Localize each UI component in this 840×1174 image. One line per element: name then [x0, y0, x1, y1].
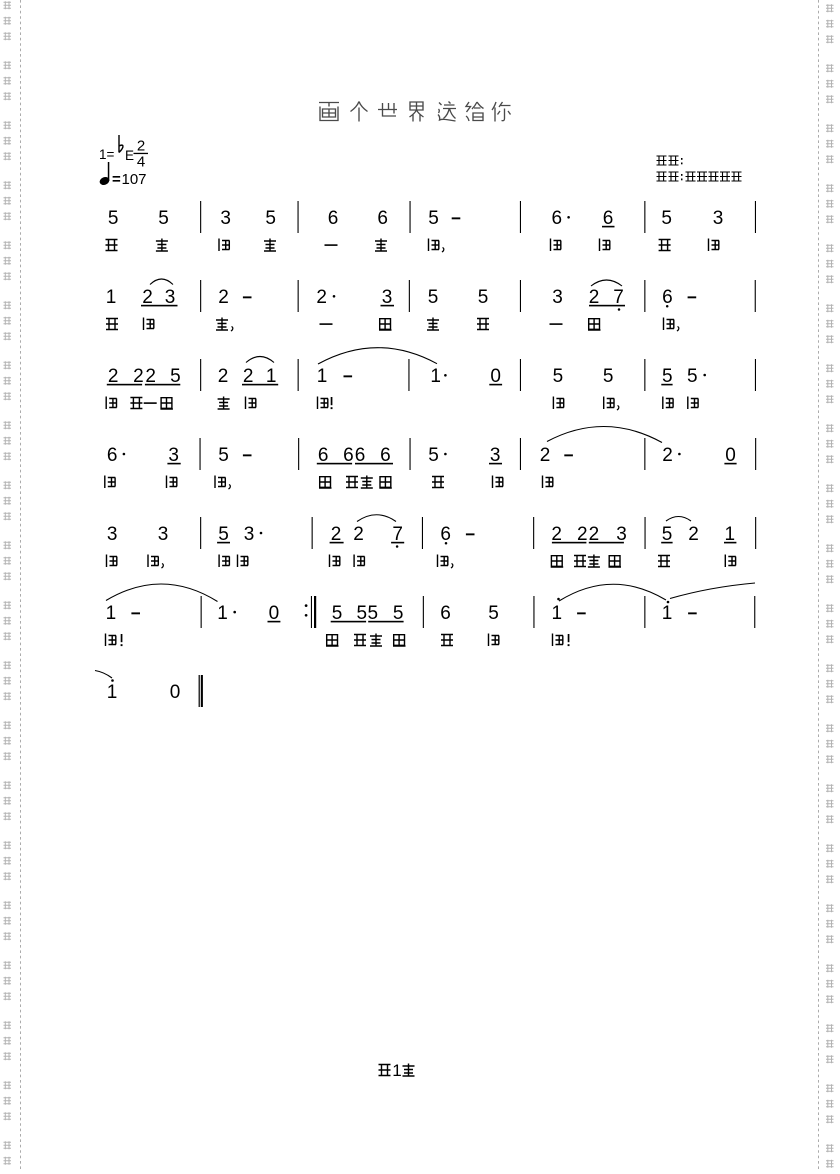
svg-text:1=: 1=	[99, 147, 115, 162]
svg-text:5: 5	[661, 208, 672, 229]
svg-text:E: E	[125, 148, 134, 163]
svg-text:107: 107	[122, 171, 147, 188]
svg-text:2: 2	[137, 138, 145, 155]
svg-text:5: 5	[553, 366, 564, 387]
svg-text:6: 6	[662, 287, 673, 308]
svg-text:3: 3	[713, 208, 724, 229]
svg-text:2: 2	[218, 287, 229, 308]
svg-text:1: 1	[106, 287, 117, 308]
svg-text:5: 5	[108, 208, 119, 229]
svg-text:6: 6	[552, 208, 563, 229]
svg-text:1: 1	[107, 682, 118, 703]
svg-text:3: 3	[158, 524, 169, 545]
svg-text:3: 3	[107, 524, 118, 545]
svg-text:2: 2	[353, 524, 364, 545]
svg-text:2: 2	[540, 445, 551, 466]
svg-text:1: 1	[662, 603, 673, 624]
svg-text:1: 1	[552, 603, 563, 624]
svg-text:5: 5	[603, 366, 614, 387]
svg-text:1: 1	[430, 366, 441, 387]
svg-text:2: 2	[662, 445, 673, 466]
svg-text:5: 5	[158, 208, 169, 229]
svg-text:3: 3	[244, 524, 255, 545]
svg-text:0: 0	[170, 682, 181, 703]
svg-text:6: 6	[440, 603, 451, 624]
svg-text:1: 1	[392, 1061, 401, 1080]
svg-text:3: 3	[552, 287, 563, 308]
svg-text:5: 5	[478, 287, 489, 308]
svg-text:4: 4	[137, 154, 145, 171]
svg-text:6: 6	[377, 208, 388, 229]
svg-text:1: 1	[217, 603, 228, 624]
svg-text:6: 6	[107, 445, 118, 466]
svg-text:5: 5	[687, 366, 698, 387]
svg-text:5: 5	[428, 287, 439, 308]
svg-text:1: 1	[106, 603, 117, 624]
svg-text:2: 2	[316, 287, 327, 308]
svg-text:5: 5	[428, 208, 439, 229]
svg-text:2: 2	[688, 524, 699, 545]
svg-text:2: 2	[218, 366, 229, 387]
svg-text:5: 5	[265, 208, 276, 229]
svg-text:6: 6	[328, 208, 339, 229]
svg-text:1: 1	[317, 366, 328, 387]
svg-text:5: 5	[488, 603, 499, 624]
svg-text:3: 3	[220, 208, 231, 229]
svg-text:5: 5	[428, 445, 439, 466]
svg-text:=: =	[112, 171, 121, 188]
svg-text:6: 6	[440, 524, 451, 545]
svg-text:5: 5	[218, 445, 229, 466]
